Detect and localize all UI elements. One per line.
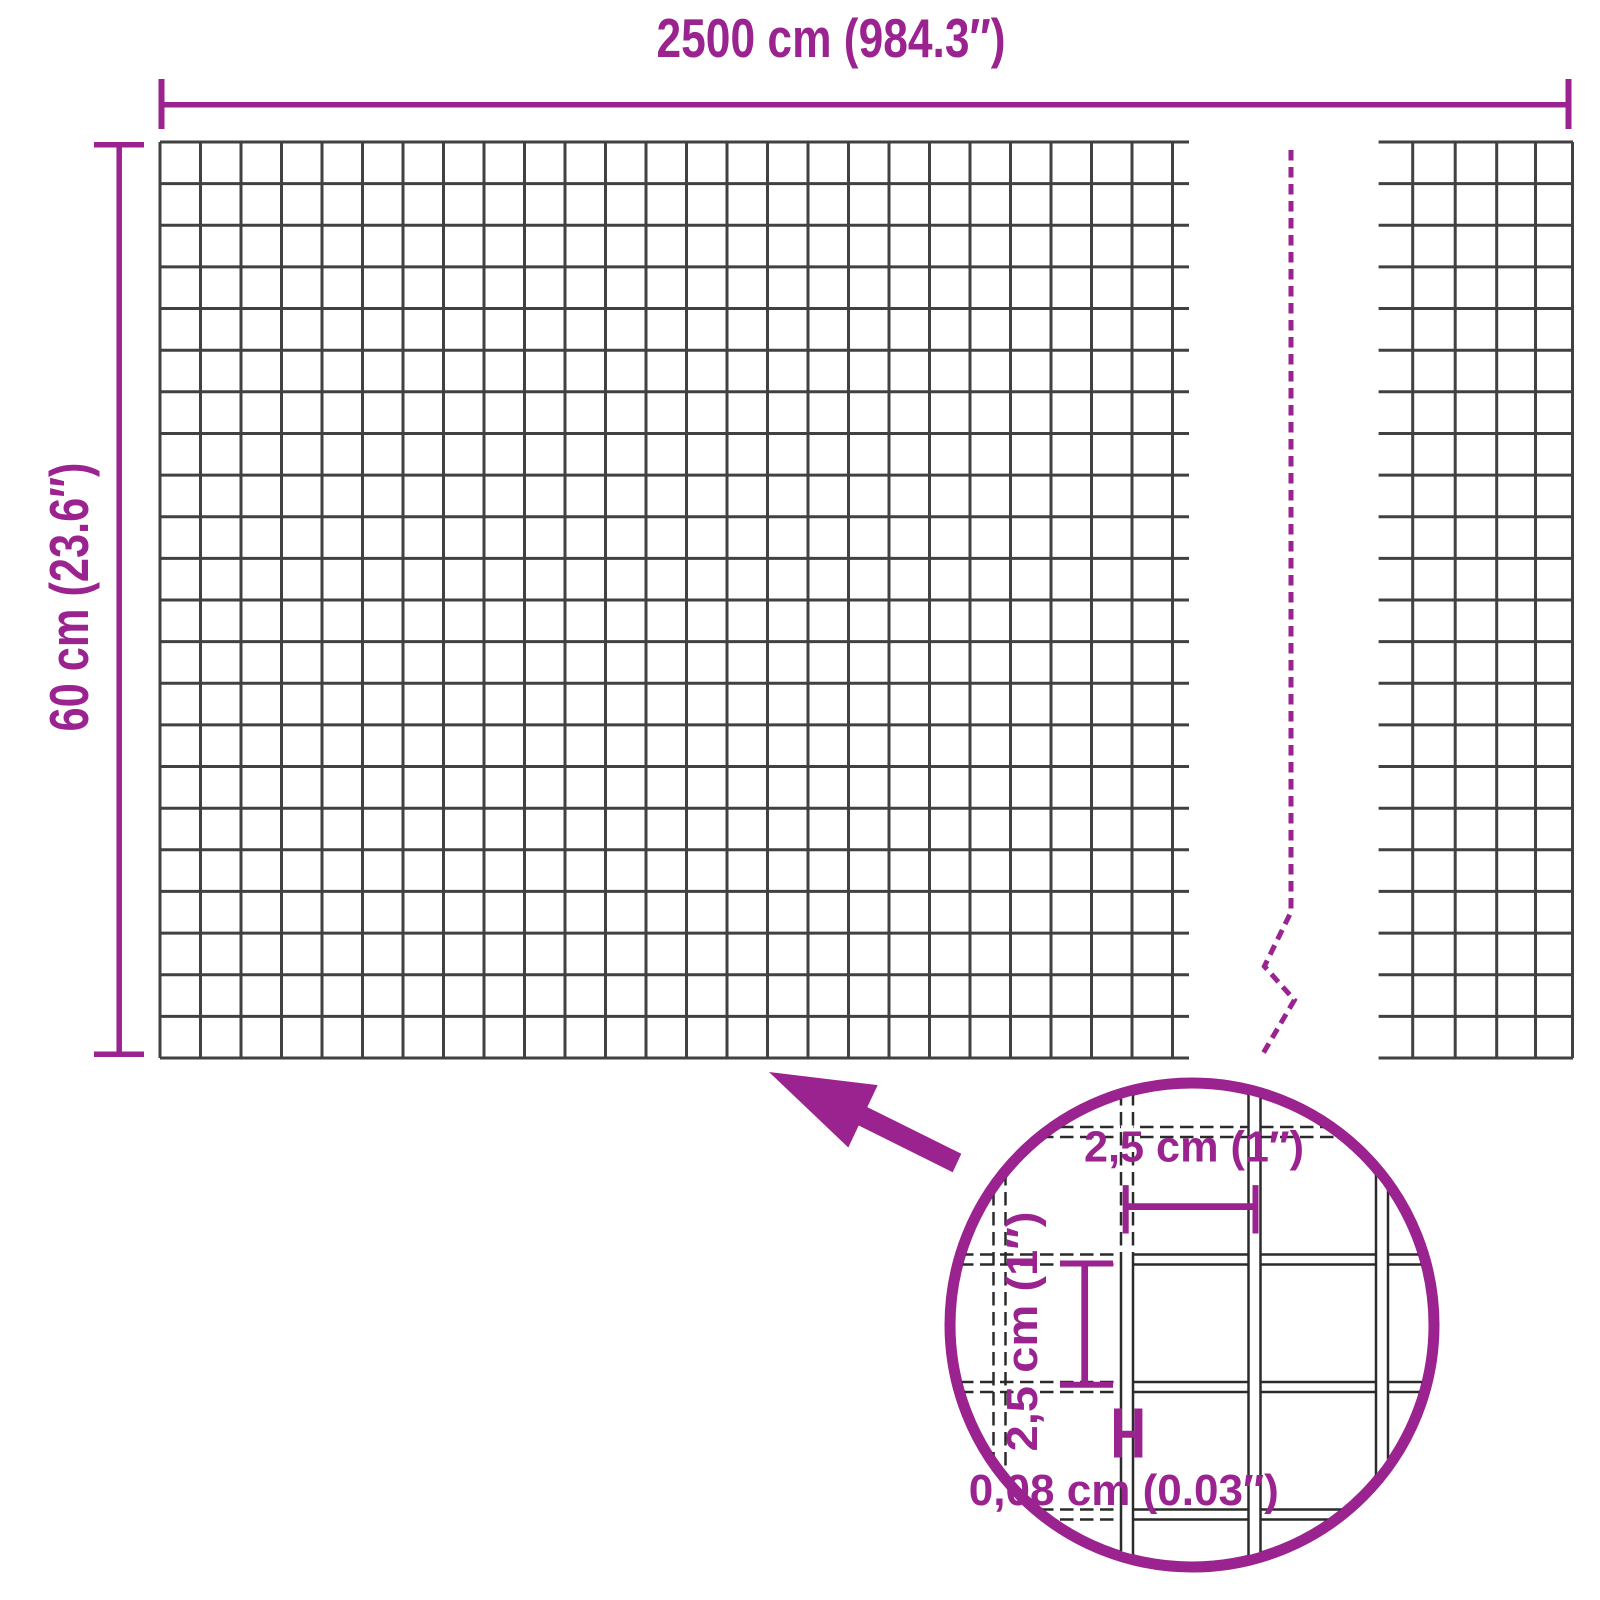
svg-text:0,08 cm (0.03″): 0,08 cm (0.03″) [969, 1466, 1279, 1515]
svg-text:2,5 cm (1″): 2,5 cm (1″) [998, 1212, 1047, 1452]
svg-text:2500 cm (984.3″): 2500 cm (984.3″) [657, 7, 1006, 69]
svg-text:2,5 cm (1″): 2,5 cm (1″) [1084, 1123, 1304, 1172]
svg-text:60 cm (23.6″): 60 cm (23.6″) [38, 463, 100, 732]
